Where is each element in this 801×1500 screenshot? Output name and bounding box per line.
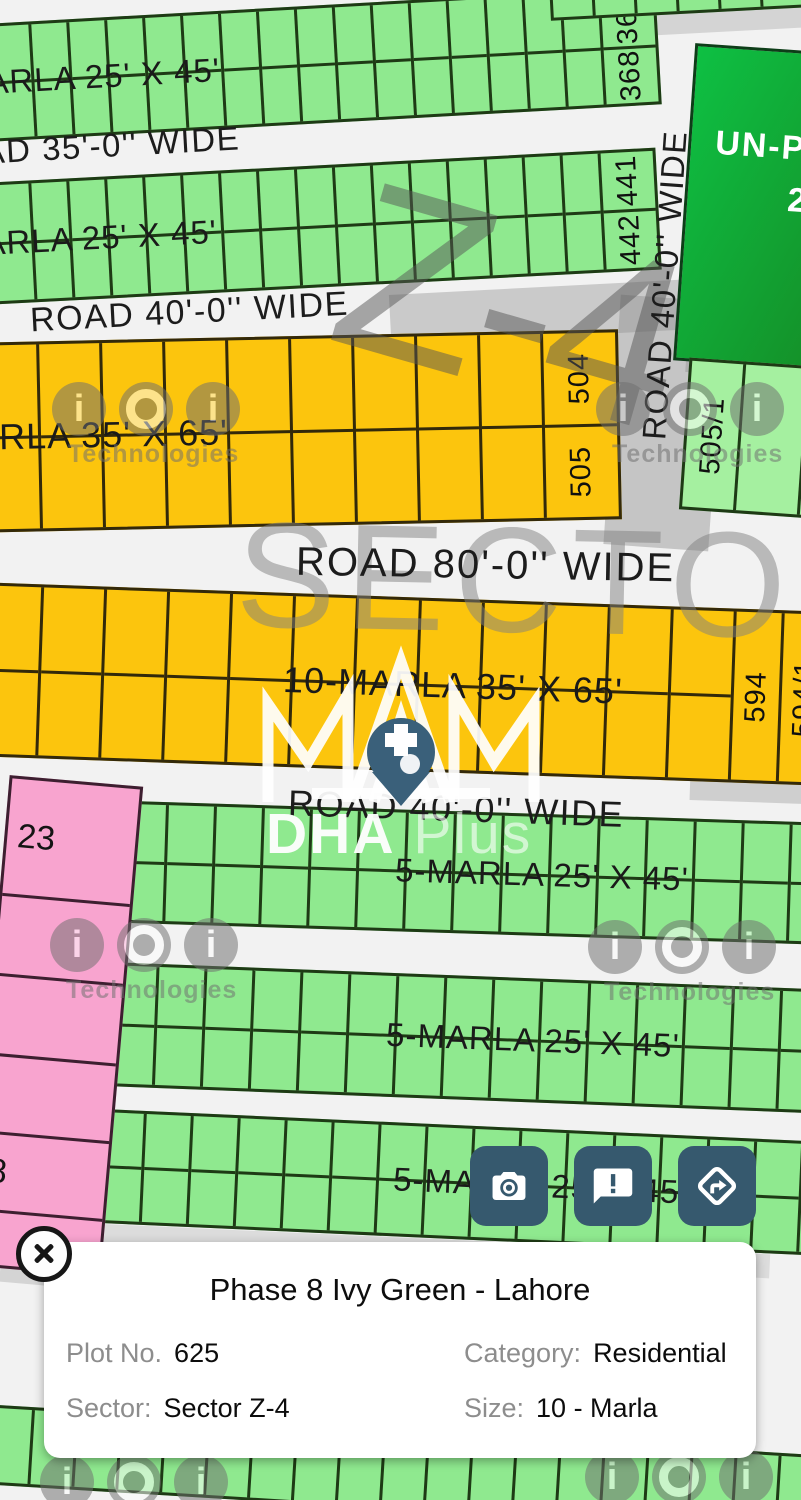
brand-watermark: iiTechnologies	[50, 918, 238, 1005]
plot-cell[interactable]	[41, 587, 104, 675]
lens-icon	[663, 382, 717, 436]
plot-cell[interactable]	[781, 991, 801, 1053]
info-icon: i	[722, 920, 776, 974]
plot-cell[interactable]	[743, 823, 790, 884]
plot-cell[interactable]	[262, 67, 300, 123]
road-label: ROAD 80'-0'' WIDE	[296, 540, 676, 592]
category-field: Category:Residential	[464, 1338, 727, 1369]
brand-watermark: iiTechnologies	[52, 382, 240, 469]
plot-number: 368	[613, 49, 649, 102]
plot-cell[interactable]	[779, 1051, 801, 1110]
lens-icon	[107, 1455, 161, 1500]
plot-cell[interactable]	[259, 10, 297, 69]
directions-icon	[695, 1164, 739, 1208]
plot-cell[interactable]	[221, 172, 259, 233]
map-canvas[interactable]: Z-4 SECTOR ROAD 35'-0'' WIDE ROAD 40'-0'…	[0, 0, 801, 1500]
plot-number: 594/1	[786, 659, 801, 738]
plot-cell[interactable]	[752, 1197, 798, 1251]
plot-number: 594	[739, 670, 774, 723]
plot-cell[interactable]	[309, 869, 356, 927]
lens-icon	[655, 920, 709, 974]
plot-cell[interactable]	[695, 822, 742, 883]
plot-cell[interactable]	[553, 0, 596, 18]
plot-cell[interactable]	[0, 585, 41, 673]
plot-cell[interactable]	[261, 868, 308, 926]
plot-cell[interactable]	[297, 168, 335, 229]
feedback-bubble-icon	[592, 1165, 634, 1207]
plot-number: 23	[16, 817, 57, 859]
plot-cell[interactable]	[164, 677, 227, 762]
plot-number: 8	[0, 1152, 9, 1193]
plot-cell[interactable]	[373, 3, 411, 62]
plot-cell[interactable]	[777, 1456, 801, 1500]
plot-cell[interactable]	[236, 1174, 282, 1228]
brand-watermark-text: Technologies	[68, 440, 240, 469]
info-icon: i	[50, 918, 104, 972]
plot-cell[interactable]	[285, 1120, 331, 1177]
plot-info-card: Phase 8 Ivy Green - Lahore Plot No.625 C…	[44, 1242, 756, 1458]
plot-cell[interactable]	[299, 1033, 346, 1092]
plot-cell[interactable]	[566, 50, 604, 106]
close-button[interactable]	[16, 1226, 72, 1282]
info-icon: i	[730, 382, 784, 436]
plot-cell[interactable]	[300, 227, 338, 285]
size-field: Size:10 - Marla	[464, 1393, 658, 1424]
plot-cell[interactable]	[668, 695, 731, 780]
plot-cell[interactable]	[297, 8, 335, 67]
brand-watermark: iiTechnologies	[596, 382, 784, 469]
camera-icon	[488, 1165, 530, 1207]
plot-cell[interactable]	[142, 1169, 188, 1223]
plot-cell[interactable]	[167, 805, 214, 866]
info-icon: i	[40, 1455, 94, 1500]
plot-cell[interactable]	[224, 231, 262, 289]
plot-cell[interactable]	[376, 61, 414, 117]
plot-band: 3673685-MARLA 25' X 45'	[0, 0, 662, 144]
plot-cell[interactable]	[251, 1031, 298, 1090]
plot-cell[interactable]	[452, 56, 490, 112]
plot-card-title: Phase 8 Ivy Green - Lahore	[44, 1272, 756, 1308]
sector-field: Sector:Sector Z-4	[66, 1393, 290, 1424]
plot-cell[interactable]	[283, 1176, 329, 1230]
info-icon: i	[588, 920, 642, 974]
plot-cell[interactable]	[0, 1408, 32, 1484]
plot-cell[interactable]	[0, 1055, 116, 1144]
plot-cell[interactable]	[224, 69, 262, 125]
plot-cell[interactable]	[167, 592, 230, 680]
info-icon: i	[596, 382, 650, 436]
plot-cell[interactable]	[720, 0, 763, 9]
plot-cell[interactable]	[165, 865, 212, 923]
info-icon: i	[174, 1455, 228, 1500]
plot-cell[interactable]	[104, 590, 167, 678]
plot-cell[interactable]	[155, 1027, 202, 1086]
plot-cell[interactable]	[636, 0, 679, 13]
plot-cell[interactable]	[301, 973, 348, 1035]
plot-cell[interactable]	[203, 1029, 250, 1088]
logo-wordmark: DHA Plus	[256, 801, 546, 867]
plot-cell[interactable]	[189, 1172, 235, 1226]
plot-cell[interactable]	[330, 1178, 376, 1232]
unplanned-label: UN-P	[714, 124, 801, 169]
plot-cell[interactable]	[731, 1050, 778, 1109]
plot-cell[interactable]	[678, 0, 721, 11]
brand-watermark-text: Technologies	[604, 978, 776, 1007]
info-icon: i	[186, 382, 240, 436]
plot-cell[interactable]	[262, 229, 300, 287]
plot-cell[interactable]	[789, 884, 801, 942]
plot-cell[interactable]	[594, 0, 637, 15]
plot-cell[interactable]	[791, 825, 801, 886]
brand-watermark-text: Technologies	[612, 440, 784, 469]
brand-watermark: iiTechnologies	[588, 920, 776, 1007]
info-icon: i	[184, 918, 238, 972]
lens-icon	[117, 918, 171, 972]
plot-cell[interactable]	[101, 675, 164, 760]
plot-cell[interactable]	[528, 52, 566, 108]
plot-cell[interactable]	[338, 63, 376, 119]
info-icon: i	[52, 382, 106, 436]
dha-plus-logo: DHA Plus	[256, 640, 546, 867]
logo-crown-icon	[256, 640, 546, 808]
camera-button[interactable]	[470, 1146, 548, 1226]
lens-icon	[119, 382, 173, 436]
brand-watermark-text: Technologies	[66, 976, 238, 1005]
plot-cell[interactable]	[300, 65, 338, 121]
plot-cell[interactable]	[215, 807, 262, 868]
plot-cell[interactable]: 8	[0, 1133, 109, 1222]
unplanned-number: 2	[786, 181, 801, 221]
plot-cell-numbered[interactable]: 368	[604, 47, 659, 104]
plot-number-field: Plot No.625	[66, 1338, 219, 1369]
plot-cell[interactable]	[335, 5, 373, 64]
plot-cell[interactable]	[221, 12, 259, 71]
plot-cell[interactable]	[332, 1123, 378, 1180]
plot-cell[interactable]	[213, 866, 260, 924]
plot-cell[interactable]	[414, 59, 452, 115]
plot-cell[interactable]	[144, 1114, 190, 1171]
plot-cell[interactable]	[683, 1048, 730, 1107]
plot-cell[interactable]	[38, 673, 101, 758]
plot-cell[interactable]	[253, 971, 300, 1033]
unplanned-area[interactable]: UN-P 2	[673, 43, 801, 371]
plot-cell[interactable]	[238, 1118, 284, 1175]
plot-cell[interactable]	[490, 54, 528, 110]
plot-cell[interactable]	[762, 0, 801, 7]
plot-cell[interactable]	[191, 1116, 237, 1173]
report-issue-button[interactable]	[574, 1146, 652, 1226]
plot-cell[interactable]	[0, 671, 38, 756]
brand-watermark: iiTechnologies	[40, 1455, 228, 1500]
plot-cell[interactable]	[755, 1142, 801, 1199]
plot-cell[interactable]: 23	[2, 778, 140, 907]
plot-cell[interactable]	[449, 0, 487, 58]
plot-cell[interactable]	[411, 1, 449, 60]
directions-button[interactable]	[678, 1146, 756, 1226]
plot-cell[interactable]	[487, 0, 525, 56]
plot-cell[interactable]	[259, 170, 297, 231]
